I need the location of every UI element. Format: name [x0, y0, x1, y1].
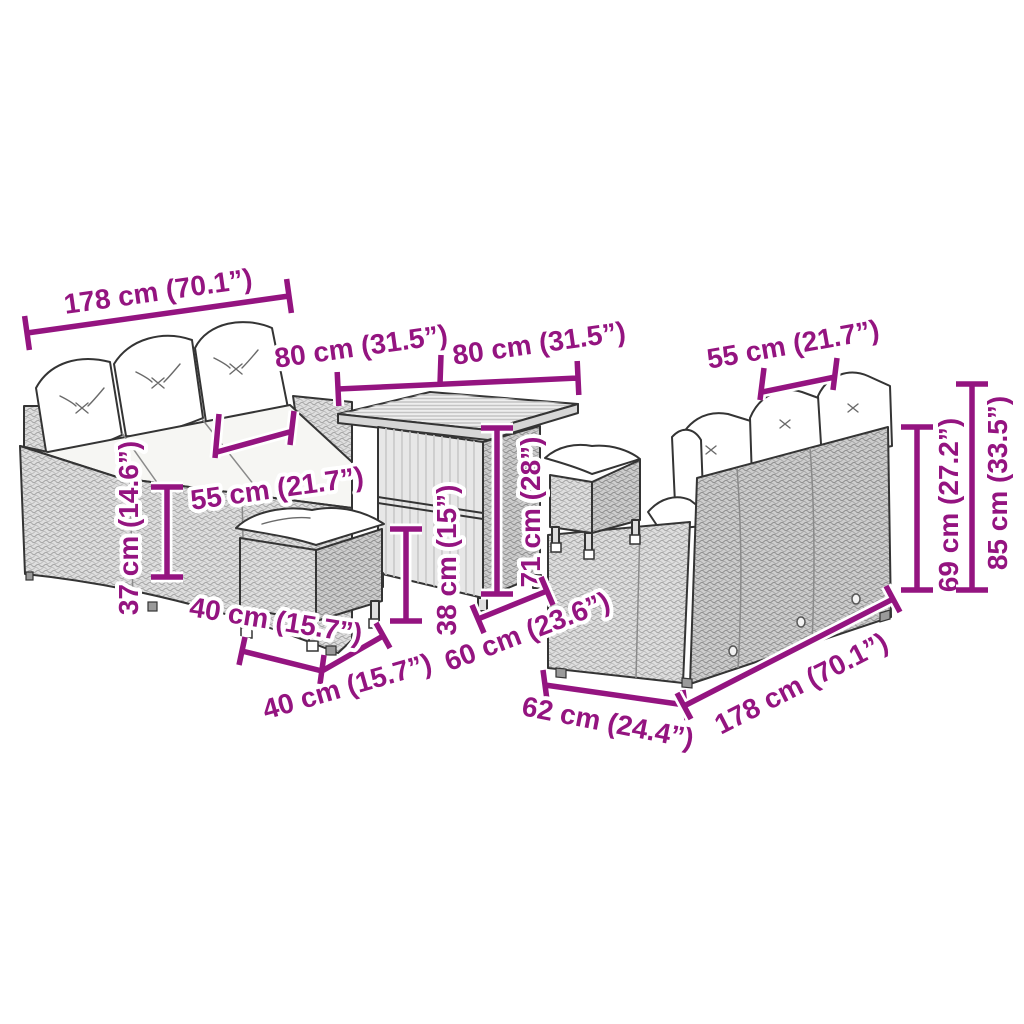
dimension-label: 71 cm (28”): [515, 437, 546, 588]
dim-table-top: 80 cm (31.5”) 80 cm (31.5”): [273, 316, 628, 406]
sofa-foot: [682, 678, 692, 688]
left-sofa-back-cushion: [114, 336, 203, 436]
dim-right-sofa-depth: 62 cm (24.4”): [519, 670, 696, 754]
dim-right-sofa-back-height: 69 cm (27.2”): [901, 418, 964, 592]
stool-leg: [371, 601, 379, 621]
panel-hole: [729, 646, 737, 656]
dimension-diagram: 178 cm (70.1”) 80 cm (31.5”) 80 cm (31.5…: [0, 0, 1024, 1024]
stool-foot-cap: [551, 543, 561, 552]
dim-stool: 40 cm (15.7”) 40 cm (15.7”): [187, 591, 435, 725]
right-stool-front: [550, 475, 592, 533]
dimension-label: 85 cm (33.5”): [982, 396, 1013, 570]
sofa-foot: [556, 668, 566, 678]
sofa-foot: [326, 646, 336, 655]
diagram-svg: 178 cm (70.1”) 80 cm (31.5”) 80 cm (31.5…: [0, 0, 1024, 1024]
sofa-foot: [148, 602, 157, 611]
dimension-label: 38 cm (15”): [431, 485, 462, 636]
panel-hole: [797, 617, 805, 627]
dimension-label: 80 cm (31.5”): [451, 316, 628, 371]
dimension-label: 55 cm (21.7”): [705, 314, 882, 375]
stool-foot-cap: [307, 641, 318, 651]
dimension-line: [901, 427, 933, 590]
stool-leg: [585, 533, 592, 552]
dimension-label: 69 cm (27.2”): [933, 418, 964, 592]
panel-hole: [852, 594, 860, 604]
dimension-label: 80 cm (31.5”): [273, 319, 450, 374]
sofa-foot: [26, 572, 33, 580]
dimension-label: 37 cm (14.6”): [113, 441, 144, 615]
stool-foot-cap: [584, 550, 594, 559]
dim-right-sofa-total-height: 85 cm (33.5”): [956, 384, 1013, 590]
stool-foot-cap: [630, 535, 640, 544]
